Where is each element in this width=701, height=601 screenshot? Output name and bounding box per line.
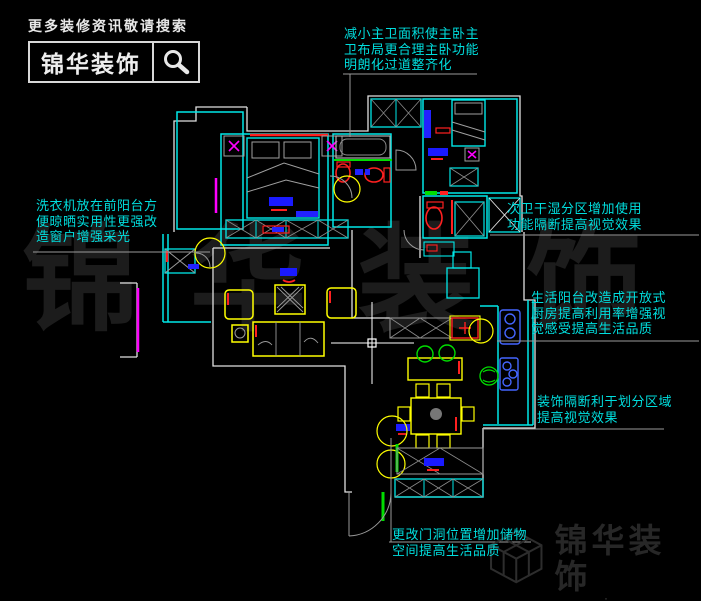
armchair [225, 290, 253, 319]
annotation-line: 装饰隔断利于划分区域 [537, 394, 672, 410]
brand-name: 锦华装饰 [30, 43, 154, 81]
door-swing-circle [469, 319, 493, 343]
magnifier-icon [154, 43, 198, 81]
master-bathroom [330, 136, 392, 202]
storage-lower [395, 479, 483, 497]
annotation-kitchen-balcony: 生活阳台改造成开放式 厨房提高利用率增强视 觉感受提高生活品质 [531, 290, 666, 337]
corridor [331, 150, 424, 384]
shower [455, 202, 484, 236]
room-label-block [269, 197, 293, 206]
annotation-line: 洗衣机放在前阳台方 [36, 198, 158, 214]
annotation-line: 提高视觉效果 [537, 410, 672, 426]
entry-door-arc [349, 493, 391, 536]
toilet [426, 207, 442, 229]
annotation-line: 卫布局更合理主卧功能 [344, 42, 479, 58]
annotation-line: 明朗化过道整齐化 [344, 57, 479, 73]
annotation-line: 觉感受提高生活品质 [531, 321, 666, 337]
header: 更多装修资讯敬请搜索 锦华装饰 [28, 16, 200, 83]
annotation-line: 生活阳台改造成开放式 [531, 290, 666, 306]
cabinet-row [390, 316, 480, 340]
dining-set [396, 384, 474, 448]
room-label-block [424, 458, 444, 466]
footer-website: www.js-jinhua.com [555, 596, 701, 601]
annotation-line: 空间提高生活品质 [392, 543, 527, 559]
room-label-block [188, 264, 199, 269]
annotation-entry-door: 更改门洞位置增加储物 空间提高生活品质 [392, 527, 527, 558]
annotation-master-bath: 减小主卫面积使主卧主 卫布局更合理主卧功能 明朗化过道整齐化 [344, 26, 479, 73]
cad-screenshot: 锦华装饰 [0, 0, 701, 601]
dresser-row [226, 220, 348, 238]
stove [500, 358, 518, 390]
closet-row [371, 99, 421, 127]
annotation-line: 次卫干湿分区增加使用 [507, 201, 642, 217]
bar-stool [417, 346, 433, 362]
bar-counter [408, 345, 462, 380]
sink [500, 310, 520, 344]
annotation-laundry-balcony: 洗衣机放在前阳台方 便晾晒实用性更强改 造窗户增强采光 [36, 198, 158, 245]
annotation-line: 造窗户增强采光 [36, 229, 158, 245]
laundry-balcony [165, 238, 225, 273]
annotation-line: 厨房提高利用率增强视 [531, 306, 666, 322]
annotation-partition: 装饰隔断利于划分区域 提高视觉效果 [537, 394, 672, 425]
room-label-block [280, 268, 297, 276]
desk [447, 252, 479, 298]
annotation-line: 功能隔断提高视觉效果 [507, 217, 642, 233]
annotation-line: 便晾晒实用性更强改 [36, 214, 158, 230]
brand-search-box: 锦华装饰 [28, 41, 200, 83]
plant [480, 367, 498, 385]
dresser [450, 168, 478, 186]
second-bathroom [424, 191, 520, 256]
vanity [424, 242, 454, 256]
kitchen [390, 252, 520, 390]
annotation-second-bath: 次卫干湿分区增加使用 功能隔断提高视觉效果 [507, 201, 642, 232]
second-bedroom [371, 99, 485, 186]
room-label-block [428, 148, 448, 156]
room-label-block [396, 424, 410, 431]
annotation-line: 更改门洞位置增加储物 [392, 527, 527, 543]
annotation-line: 减小主卫面积使主卧主 [344, 26, 479, 42]
header-tagline: 更多装修资讯敬请搜索 [28, 16, 200, 36]
footer-brand-name: 锦华装饰 [555, 524, 701, 596]
